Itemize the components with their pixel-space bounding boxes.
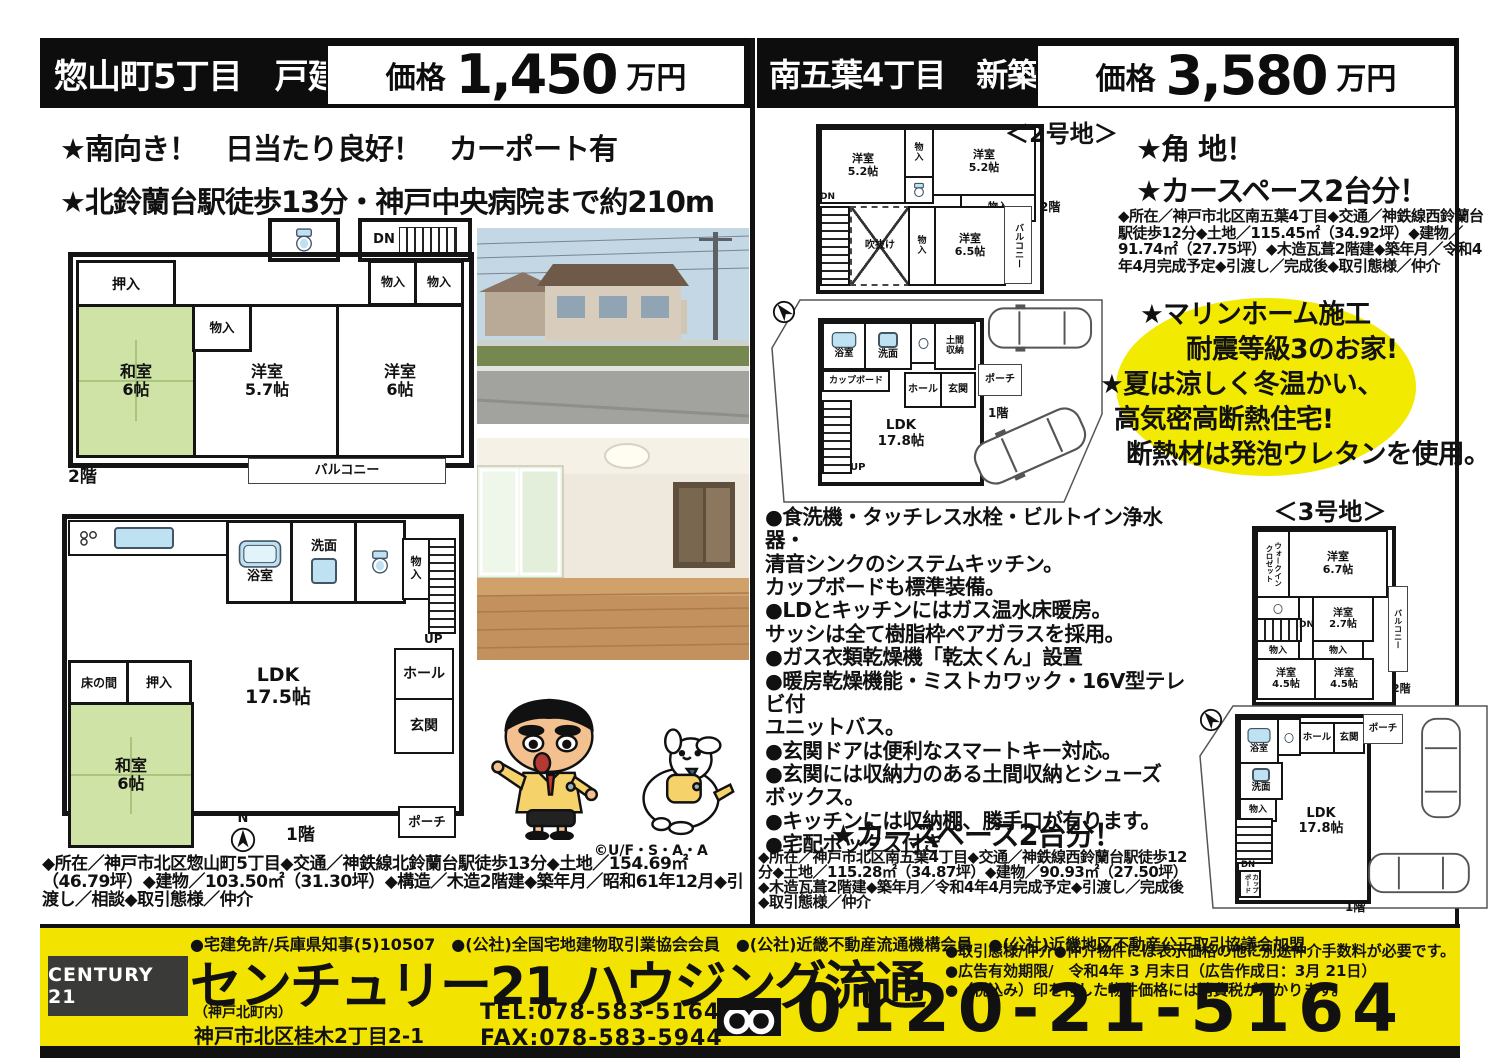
left-property-details: ◆所在／神戸市北区惣山町5丁目◆交通／神鉄線北鈴蘭台駅徒歩13分◆土地／154.… xyxy=(42,856,754,910)
bathtub-icon xyxy=(238,540,282,568)
lot2-room-yoshitsu65: 洋室 6.5帖 xyxy=(934,206,1006,286)
lot3-stairs-2f xyxy=(1256,618,1302,642)
lot2-2f-floor-label: 2階 xyxy=(1040,198,1060,215)
left-price-box: 価格 1,450 万円 xyxy=(326,44,746,106)
stairs-icon xyxy=(399,227,457,253)
century21-logo: CENTURY 21 xyxy=(48,956,188,1016)
washer-icon xyxy=(311,558,337,584)
lot3-room-hall: ホール xyxy=(1299,722,1335,754)
lot3-room-bath: 浴室 xyxy=(1239,718,1279,764)
stove-icon xyxy=(76,530,106,546)
car-icon xyxy=(1363,850,1475,896)
room-tokonoma: 床の間 xyxy=(68,660,130,708)
lot2-room-fukinuke: 吹抜け xyxy=(850,206,910,286)
sink-icon xyxy=(878,332,898,348)
toilet-icon xyxy=(1284,731,1294,744)
car-icon xyxy=(1413,716,1469,820)
room-senmen-1f: 洗面 xyxy=(290,520,358,604)
left-property-title: 惣山町5丁目 戸建 xyxy=(54,49,341,98)
room-monoire-1f: 物 入 xyxy=(402,538,430,600)
lot3-senmen-label: 洗面 xyxy=(1251,783,1270,794)
lot2-room-genkan: 玄関 xyxy=(940,372,976,408)
lot3-room-ldk: LDK 17.8帖 xyxy=(1283,800,1359,844)
footer-tel: TEL:078-583-5164 xyxy=(480,1000,720,1025)
room-genkan-1f: 玄関 xyxy=(394,698,454,754)
bottom-black-bar xyxy=(40,1046,1460,1058)
room-washitsu-6-1f: 和室 6帖 xyxy=(68,702,194,848)
mascot-characters xyxy=(488,690,744,840)
lot2-balcony: バルコニー xyxy=(1004,206,1032,284)
lot3-siteplan-1f: 浴室 ホール 玄関 ポーチ 洗面 物入 DN カップボード LDK 17.8帖 … xyxy=(1195,700,1495,922)
kitchen-sink-icon xyxy=(114,527,174,549)
right-details-bottom: ◆所在／神戸市北区南五葉4丁目◆交通／神鉄線西鈴蘭台駅徒歩12分◆土地／115.… xyxy=(758,850,1190,910)
column-divider xyxy=(750,38,755,924)
lot3-bath-label: 浴室 xyxy=(1250,744,1268,754)
photo-exterior xyxy=(477,228,749,424)
room-yoshitsu-6-2f: 洋室 6帖 xyxy=(336,304,464,458)
lot3-room-yoshitsu45-b: 洋室 4.5帖 xyxy=(1314,658,1374,700)
lot2-siteplan-1f: 浴室 洗面 土間 収納 カップボード ホール 玄関 UP LDK 17.8帖 ポ… xyxy=(770,296,1105,506)
exterior-photo-image xyxy=(477,228,749,424)
toilet-icon xyxy=(918,336,929,350)
compass-icon xyxy=(230,825,256,853)
room-hall-1f: ホール xyxy=(394,648,454,700)
lot2-room-doma: 土間 収納 xyxy=(934,322,976,370)
lot3-balcony: バルコニー xyxy=(1388,586,1408,672)
lot2-bath-label: 浴室 xyxy=(834,349,853,360)
room-balcony-2f: バルコニー xyxy=(248,458,446,484)
lot3-1f-floor-label: 1階 xyxy=(1345,898,1365,915)
lot2-toilet-2f xyxy=(904,176,934,204)
toilet-icon xyxy=(294,227,314,253)
lot2-stairs-up-label: UP xyxy=(850,462,865,473)
room-bath-1f: 浴室 xyxy=(226,520,294,604)
lot3-room-cupboard: カップボード xyxy=(1239,870,1261,898)
right-price-unit: 万円 xyxy=(1336,54,1396,98)
lot3-title: ＜3号地＞ xyxy=(1240,492,1420,527)
lot3-room-senmen: 洗面 xyxy=(1239,762,1283,800)
right-details-top: ◆所在／神戸市北区南五葉4丁目◆交通／神鉄線西鈴蘭台駅徒歩12分◆土地／115.… xyxy=(1118,208,1488,274)
kitchen-counter xyxy=(68,520,230,556)
lot2-floorplan-2f: 洋室 5.2帖 物 入 洋室 5.2帖 物入 2階 DN 吹抜け 物 入 洋室 … xyxy=(808,112,1108,302)
room-porch-1f: ポーチ xyxy=(398,806,456,838)
lot2-stairs-dn-label: DN xyxy=(820,192,835,202)
lot2-1f-floor-label: 1階 xyxy=(988,404,1008,421)
car-icon xyxy=(986,304,1094,352)
highlight-line-3: ★夏は涼しく冬温かい、 xyxy=(1100,368,1490,403)
bathtub-icon xyxy=(831,332,857,348)
lot2-senmen-label: 洗面 xyxy=(878,349,898,361)
compass-icon xyxy=(1199,706,1223,734)
lot3-stairs-dn-label-1f: DN xyxy=(1241,860,1255,870)
toilet-icon xyxy=(1273,602,1283,615)
lot2-stairs-1f xyxy=(822,400,852,474)
toilet-icon xyxy=(370,549,390,575)
left-floorplan-2f: DN 押入 洋室 5.7帖 和室 6帖 物入 洋室 6帖 物入 物入 バルコニー… xyxy=(68,218,464,484)
flyer-page: 惣山町5丁目 戸建 価格 1,450 万円 ★南向き！ 日当たり良好！ カーポー… xyxy=(0,0,1500,1061)
lot2-room-cupboard: カップボード xyxy=(822,370,890,392)
floor-label-2f: 2階 xyxy=(68,462,97,487)
right-equipment-bullets: ●食洗機・タッチレス水栓・ビルトイン浄水器・ 清音シンクのシステムキッチン。 カ… xyxy=(765,506,1195,856)
stairs-up-1f xyxy=(428,538,456,634)
left-feature-2: ★北鈴蘭台駅徒歩13分・神戸中央病院まで約210m xyxy=(60,179,714,221)
room-bath-label: 浴室 xyxy=(247,570,273,585)
right-price-value: 3,580 xyxy=(1166,49,1327,103)
freedial-icon xyxy=(716,994,782,1040)
lot2-room-monoire-c: 物 入 xyxy=(908,206,936,286)
lot2-room-ldk: LDK 17.8帖 xyxy=(865,412,937,456)
room-ldk-1f: LDK 17.5帖 xyxy=(208,656,348,718)
lot3-room-porch: ポーチ xyxy=(1363,714,1403,744)
lot3-room-yoshitsu67: 洋室 6.7帖 xyxy=(1288,530,1388,598)
room-monoire-2f-c: 物入 xyxy=(414,260,464,306)
footer-address: 神戸市北区桂木2丁目2-1 xyxy=(194,1020,424,1049)
lot3-toilet-1f xyxy=(1277,718,1301,756)
lot3-room-yoshitsu27: 洋室 2.7帖 xyxy=(1312,596,1374,642)
lot2-room-hall: ホール xyxy=(904,372,942,408)
toilet-room-1f xyxy=(354,520,406,604)
lot2-stairs-2f xyxy=(820,206,850,286)
lot3-2f-floor-label: 2階 xyxy=(1392,680,1411,696)
footer-branch: （神戸北町内） xyxy=(194,1002,292,1022)
lot2-toilet-1f xyxy=(910,322,936,364)
floor-label-1f: 1階 xyxy=(286,820,315,845)
right-price-box: 価格 3,580 万円 xyxy=(1036,44,1456,108)
room-washitsu-6-2f: 和室 6帖 xyxy=(76,304,196,458)
highlight-line-1: ★マリンホーム施工 xyxy=(1140,298,1490,333)
stairs-up-label: UP xyxy=(424,632,443,646)
footer: ●宅建免許/兵庫県知事(5)10507 ●(公社)全国宅地建物取引業協会会員 ●… xyxy=(40,924,1460,1050)
toilet-icon xyxy=(913,182,925,198)
compass-north-label: N xyxy=(228,812,258,825)
sink-icon xyxy=(1252,768,1270,782)
right-price-label: 価格 xyxy=(1096,54,1156,98)
left-features: ★南向き！ 日当たり良好！ カーポート有 ★北鈴蘭台駅徒歩13分・神戸中央病院ま… xyxy=(60,126,714,221)
highlight-block: ★マリンホーム施工 耐震等級3のお家! ★夏は涼しく冬温かい、 高気密高断熱住宅… xyxy=(1098,298,1490,476)
footer-notes: ●取引態様/仲介●仲介物件には表示価格の他に別途仲介手数料が必要です。 ●広告有… xyxy=(945,942,1455,1001)
lot3-room-yoshitsu45-a: 洋室 4.5帖 xyxy=(1256,658,1316,700)
room-monoire-2f-b: 物入 xyxy=(368,260,418,306)
photo-interior xyxy=(477,438,749,660)
lot3-room-genkan: 玄関 xyxy=(1333,722,1365,754)
right-feature-1: ★角 地！ xyxy=(1136,126,1254,168)
lot2-room-monoire-a: 物 入 xyxy=(904,128,934,178)
lot3-room-wic: ウォークイン クロゼット xyxy=(1256,530,1290,598)
highlight-line-4: 高気密高断熱住宅! xyxy=(1114,403,1490,438)
left-floorplan-1f: 浴室 洗面 物 入 UP ホール 玄関 ポーチ LDK 17.5帖 床の間 押入… xyxy=(58,498,460,862)
stairs-dn-label: DN xyxy=(373,233,395,248)
right-feature-2: ★カースペース2台分！ xyxy=(1136,168,1427,210)
mascot-shinchan-and-dog-icon xyxy=(488,690,744,840)
left-price-unit: 万円 xyxy=(626,53,686,97)
lot2-room-bath: 浴室 xyxy=(822,322,866,370)
interior-photo-image xyxy=(477,438,749,660)
lot3-floorplan-2f: ＜3号地＞ ウォークイン クロゼット 洋室 6.7帖 洋室 2.7帖 DN バル… xyxy=(1200,492,1490,700)
lot2-title: ＜2号地＞ xyxy=(1005,114,1118,149)
left-price-label: 価格 xyxy=(386,53,446,97)
bathtub-icon xyxy=(1247,728,1271,743)
room-oshiire-2f: 押入 xyxy=(76,260,176,310)
compass-icon xyxy=(772,298,796,326)
room-monoire-2f-a: 物入 xyxy=(192,304,252,352)
compass-1f: N xyxy=(228,812,258,857)
highlight-line-5: 断熱材は発泡ウレタンを使用。 xyxy=(1126,438,1490,473)
lot3-stairs-1f xyxy=(1235,818,1273,864)
lot3-stairs-dn-label: DN xyxy=(1299,620,1314,630)
left-feature-1: ★南向き！ 日当たり良好！ カーポート有 xyxy=(60,126,714,168)
highlight-line-2: 耐震等級3のお家! xyxy=(1186,333,1490,368)
left-price-value: 1,450 xyxy=(456,48,617,102)
lot2-room-senmen: 洗面 xyxy=(864,322,912,370)
lot3-toilet-2f xyxy=(1256,596,1300,620)
lot2-room-porch: ポーチ xyxy=(978,364,1022,396)
room-senmen-label: 洗面 xyxy=(311,540,337,555)
room-oshiire-1f: 押入 xyxy=(126,660,192,708)
